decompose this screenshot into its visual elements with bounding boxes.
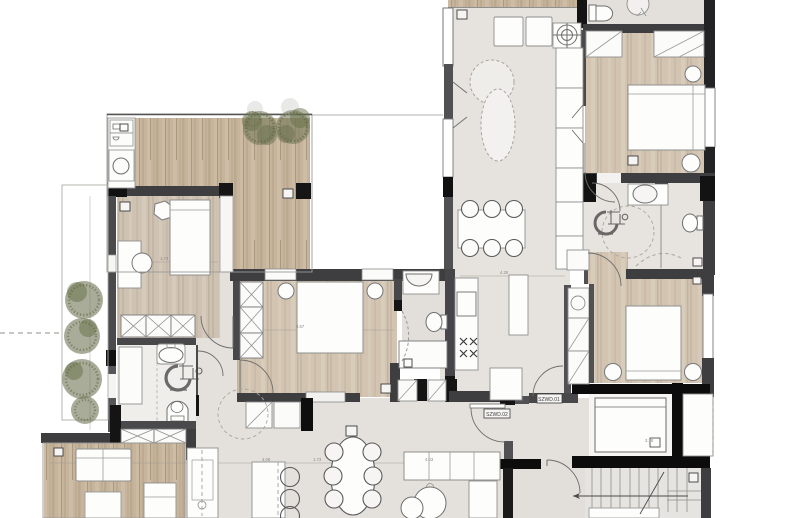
- svg-text:SZWD.02: SZWD.02: [486, 412, 508, 418]
- svg-text:3.18: 3.18: [645, 438, 654, 443]
- svg-text:4.08: 4.08: [262, 457, 271, 462]
- svg-text:4.30: 4.30: [500, 270, 509, 275]
- svg-text:SZWD.01: SZWD.01: [538, 397, 560, 403]
- svg-text:3.67: 3.67: [296, 324, 305, 329]
- svg-text:4.03: 4.03: [425, 457, 434, 462]
- svg-text:1.73: 1.73: [160, 256, 169, 261]
- svg-text:1.73: 1.73: [313, 457, 322, 462]
